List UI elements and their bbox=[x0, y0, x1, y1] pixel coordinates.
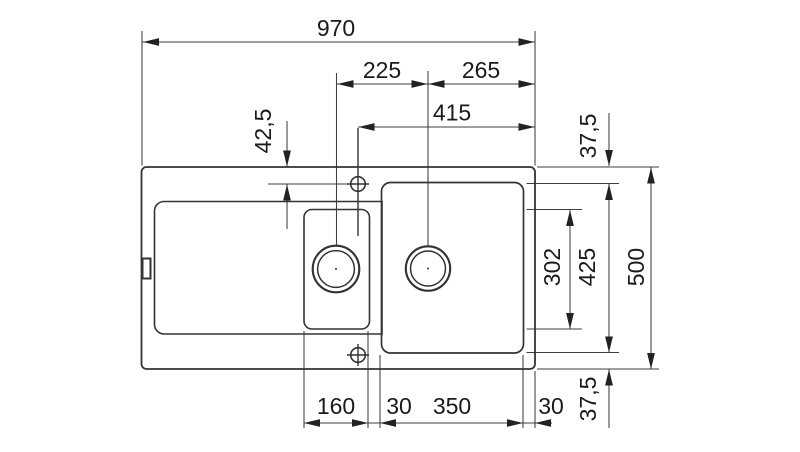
arrow-500-bottom bbox=[647, 353, 655, 369]
arrow-30-rim bbox=[535, 419, 551, 427]
dim-label-drain-spacing: 225 bbox=[363, 57, 401, 83]
arrow-160-right bbox=[352, 419, 368, 427]
arrow-37-5-bottom-up bbox=[605, 370, 613, 386]
arrow-350-right bbox=[507, 419, 523, 427]
overflow-notch bbox=[143, 259, 151, 279]
arrow-160-left bbox=[304, 419, 320, 427]
arrow-30-divider bbox=[380, 419, 396, 427]
arrow-302-top bbox=[566, 210, 574, 226]
arrow-225-left bbox=[338, 80, 354, 88]
sink-outlines bbox=[142, 167, 536, 369]
dim-label-small-bowl-width: 160 bbox=[317, 393, 355, 419]
arrow-425-top bbox=[605, 184, 613, 200]
arrow-265-right bbox=[519, 80, 535, 88]
main-bowl bbox=[382, 183, 524, 354]
dim-label-small-bowl-length: 302 bbox=[539, 248, 565, 286]
drawing-canvas: 970 225 265 415 160 30 350 30 42,5 37,5 … bbox=[0, 0, 800, 452]
arrow-42-5-down bbox=[283, 151, 291, 167]
main-bowl-drain-center-dot bbox=[427, 268, 429, 270]
dimension-labels: 970 225 265 415 160 30 350 30 42,5 37,5 … bbox=[250, 15, 649, 421]
dim-label-top-rim: 37,5 bbox=[575, 114, 601, 159]
sink-dimension-drawing: 970 225 265 415 160 30 350 30 42,5 37,5 … bbox=[0, 0, 800, 452]
drainboard bbox=[155, 202, 383, 335]
dim-label-right-rim: 30 bbox=[538, 393, 564, 419]
dim-label-divider: 30 bbox=[386, 393, 412, 419]
arrow-225-right bbox=[412, 80, 428, 88]
dim-label-tap-hole-offset: 42,5 bbox=[250, 109, 276, 154]
arrow-37-5-top-down bbox=[605, 150, 613, 166]
arrow-265-left bbox=[429, 80, 445, 88]
arrow-970-left bbox=[143, 38, 159, 46]
tap-hole-marks bbox=[347, 128, 369, 366]
arrow-415-left bbox=[359, 123, 375, 131]
arrow-302-bottom bbox=[566, 313, 574, 329]
arrow-500-top bbox=[647, 168, 655, 184]
arrow-425-bottom bbox=[605, 337, 613, 353]
dim-label-tap-hole-to-edge: 415 bbox=[433, 100, 471, 126]
dim-label-main-bowl-length: 425 bbox=[574, 248, 600, 286]
dim-label-drain-to-edge: 265 bbox=[462, 57, 500, 83]
dimension-lines bbox=[142, 42, 651, 428]
dim-label-overall-depth: 500 bbox=[623, 248, 649, 286]
sink-outer-edge bbox=[142, 167, 536, 369]
small-bowl-drain-center-dot bbox=[335, 268, 337, 270]
dim-label-overall-width: 970 bbox=[317, 15, 355, 41]
arrow-970-right bbox=[519, 38, 535, 46]
arrow-42-5-up bbox=[283, 185, 291, 201]
dim-label-bottom-rim: 37,5 bbox=[575, 377, 601, 422]
arrow-415-right bbox=[519, 123, 535, 131]
dim-label-main-bowl-width: 350 bbox=[433, 393, 471, 419]
